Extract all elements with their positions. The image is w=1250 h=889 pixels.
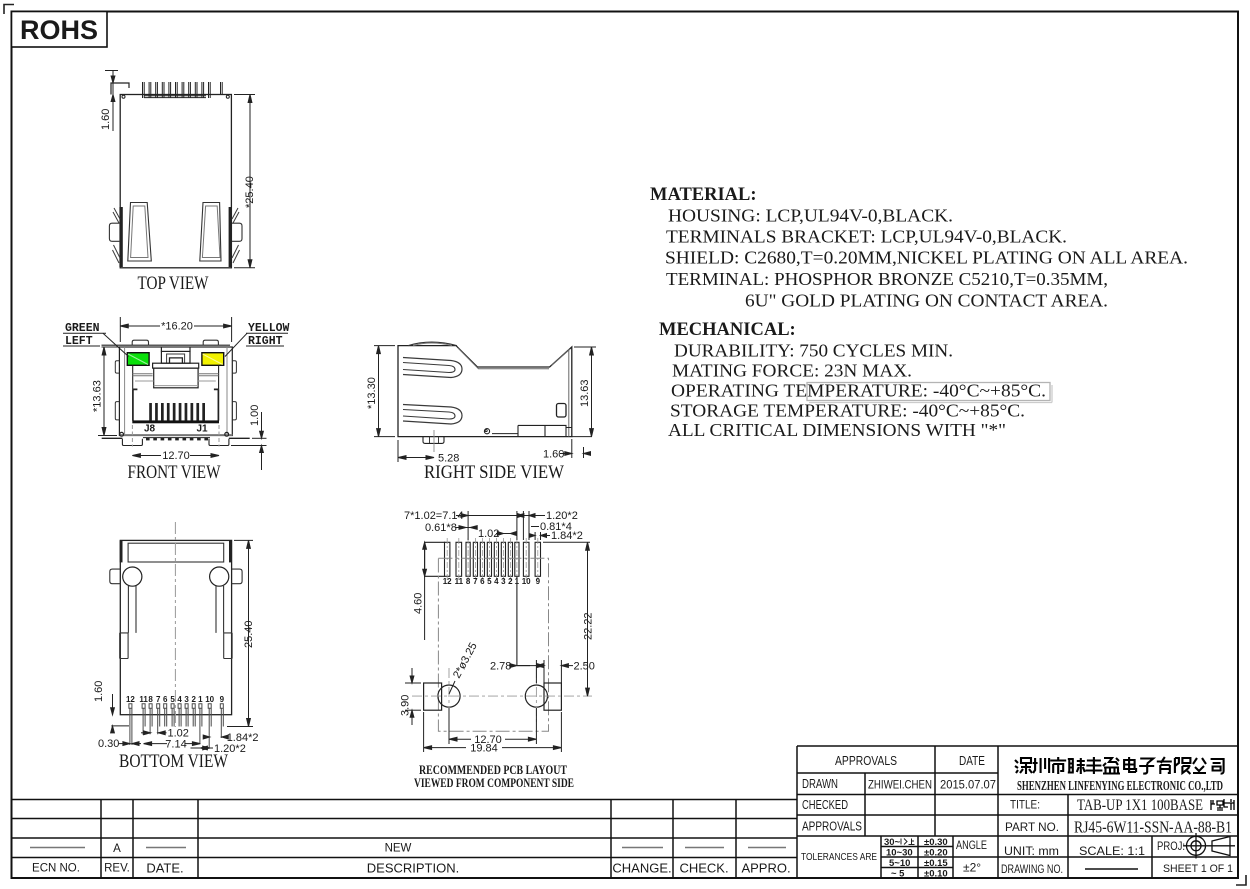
svg-text:A: A <box>113 843 121 855</box>
svg-text:2015.07.07: 2015.07.07 <box>940 778 996 792</box>
svg-text:3.90: 3.90 <box>400 695 412 716</box>
svg-text:1.60: 1.60 <box>543 449 564 461</box>
svg-text:DATE: DATE <box>959 753 985 768</box>
svg-text:ECN NO.: ECN NO. <box>32 863 80 875</box>
svg-text:TERMINALS BRACKET: LCP,UL94V-0: TERMINALS BRACKET: LCP,UL94V-0,BLACK. <box>666 227 1067 247</box>
svg-text:MATERIAL:: MATERIAL: <box>650 185 757 205</box>
svg-text:2.78: 2.78 <box>490 660 511 672</box>
svg-text:HOUSING: LCP,UL94V-0,BLACK.: HOUSING: LCP,UL94V-0,BLACK. <box>668 206 953 226</box>
svg-text:SHEET 1 OF 1: SHEET 1 OF 1 <box>1163 863 1233 875</box>
svg-text:APPROVALS: APPROVALS <box>802 820 862 834</box>
svg-text:10: 10 <box>205 695 214 704</box>
svg-text:4: 4 <box>494 577 499 586</box>
svg-text:12.70: 12.70 <box>162 450 190 462</box>
svg-text:PROJ:: PROJ: <box>1157 841 1185 853</box>
svg-text:±0.20: ±0.20 <box>924 848 948 859</box>
svg-text:19.84: 19.84 <box>470 742 498 754</box>
svg-text:RJ45-6W11-SSN-AA-88-B1: RJ45-6W11-SSN-AA-88-B1 <box>1074 818 1232 837</box>
svg-text:*13.63: *13.63 <box>92 380 104 412</box>
svg-text:9: 9 <box>220 695 225 704</box>
svg-text:SHIELD: C2680,T=0.20MM,NICKEL: SHIELD: C2680,T=0.20MM,NICKEL PLATING ON… <box>665 248 1188 268</box>
svg-text:4: 4 <box>177 695 182 704</box>
svg-text:6U" GOLD PLATING ON CONTACT AR: 6U" GOLD PLATING ON CONTACT AREA. <box>745 291 1108 311</box>
svg-text:VIEWED FROM COMPONENT SIDE: VIEWED FROM COMPONENT SIDE <box>414 776 574 790</box>
svg-text:CHANGE.: CHANGE. <box>612 861 671 876</box>
svg-text:11: 11 <box>455 577 464 586</box>
svg-text:7*1.02=7.14: 7*1.02=7.14 <box>404 510 464 522</box>
svg-text:±0.15: ±0.15 <box>924 858 948 869</box>
svg-text:8: 8 <box>466 577 471 586</box>
svg-text:TAB-UP 1X1 100BASE: TAB-UP 1X1 100BASE <box>1077 797 1203 814</box>
svg-text:*16.20: *16.20 <box>161 321 193 333</box>
svg-text:13.63: 13.63 <box>579 379 591 407</box>
svg-text:TERMINAL: PHOSPHOR BRONZE C521: TERMINAL: PHOSPHOR BRONZE C5210,T=0.35MM… <box>666 269 1108 289</box>
svg-text:±2°: ±2° <box>963 861 981 875</box>
svg-text:TOLERANCES ARE: TOLERANCES ARE <box>801 851 877 863</box>
svg-text:5: 5 <box>170 695 175 704</box>
svg-text:1: 1 <box>198 695 203 704</box>
svg-text:RECOMMENDED PCB LAYOUT: RECOMMENDED PCB LAYOUT <box>419 763 568 777</box>
svg-text:SHENZHEN LINFENYING ELECTRONIC: SHENZHEN LINFENYING ELECTRONIC CO.,LTD <box>1017 778 1223 793</box>
svg-text:ANGLE: ANGLE <box>956 840 987 852</box>
svg-text:7: 7 <box>156 695 161 704</box>
svg-text:UNIT: mm: UNIT: mm <box>1004 846 1059 858</box>
svg-text:7: 7 <box>473 577 478 586</box>
svg-text:OPERATING TEMPERATURE: -40°C~+: OPERATING TEMPERATURE: -40°C~+85°C. <box>671 381 1046 401</box>
svg-text:5: 5 <box>487 577 492 586</box>
svg-text:10~30: 10~30 <box>886 848 913 859</box>
svg-text:3: 3 <box>184 695 189 704</box>
svg-text:25.40: 25.40 <box>243 620 255 648</box>
svg-text:CHECK.: CHECK. <box>679 861 728 876</box>
svg-text:1.00: 1.00 <box>249 405 261 426</box>
svg-text:2: 2 <box>191 695 196 704</box>
svg-text:NEW: NEW <box>385 843 412 855</box>
svg-text:11: 11 <box>139 695 148 704</box>
svg-text:±0.30: ±0.30 <box>924 837 948 848</box>
svg-text:12: 12 <box>126 695 135 704</box>
svg-text:8: 8 <box>148 695 153 704</box>
svg-text:10: 10 <box>522 577 531 586</box>
svg-text:REV.: REV. <box>104 863 130 875</box>
svg-text:RIGHT SIDE VIEW: RIGHT SIDE VIEW <box>424 462 564 483</box>
svg-text:22.22: 22.22 <box>583 612 595 640</box>
svg-text:J1: J1 <box>197 424 209 435</box>
svg-text:~ 5: ~ 5 <box>891 869 905 880</box>
svg-text:FRONT VIEW: FRONT VIEW <box>128 462 221 483</box>
svg-text:4.60: 4.60 <box>413 593 425 614</box>
svg-text:12: 12 <box>443 577 452 586</box>
svg-text:DRAWN: DRAWN <box>802 777 838 791</box>
svg-text:ZHIWEI.CHEN: ZHIWEI.CHEN <box>868 778 932 792</box>
svg-text:1.60: 1.60 <box>100 109 112 130</box>
svg-text:DRAWING NO.: DRAWING NO. <box>1001 864 1063 876</box>
svg-text:DESCRIPTION.: DESCRIPTION. <box>367 861 459 876</box>
svg-text:30~: 30~ <box>884 837 901 848</box>
svg-text:*25.40: *25.40 <box>244 176 256 208</box>
svg-text:STORAGE TEMPERATURE: -40°C~+85: STORAGE TEMPERATURE: -40°C~+85°C. <box>670 401 1025 421</box>
svg-text:BOTTOM VIEW: BOTTOM VIEW <box>119 751 228 772</box>
svg-text:1.84*2: 1.84*2 <box>551 530 583 542</box>
svg-text:7.14: 7.14 <box>165 738 186 750</box>
svg-text:J8: J8 <box>144 424 156 435</box>
svg-text:±0.10: ±0.10 <box>924 869 948 880</box>
svg-text:DURABILITY: 750 CYCLES MIN.: DURABILITY: 750 CYCLES MIN. <box>674 341 953 361</box>
svg-text:*13.30: *13.30 <box>366 377 378 409</box>
svg-text:DATE.: DATE. <box>146 861 183 876</box>
svg-text:9: 9 <box>536 577 541 586</box>
svg-text:1.60: 1.60 <box>93 681 105 702</box>
svg-text:APPROVALS: APPROVALS <box>835 753 897 768</box>
svg-text:MECHANICAL:: MECHANICAL: <box>659 320 796 340</box>
svg-text:TOP VIEW: TOP VIEW <box>138 273 209 294</box>
svg-text:0.61*8: 0.61*8 <box>425 522 457 534</box>
svg-text:6: 6 <box>163 695 168 704</box>
svg-text:ALL CRITICAL DIMENSIONS WITH ": ALL CRITICAL DIMENSIONS WITH "*" <box>668 420 1006 440</box>
svg-text:ROHS: ROHS <box>20 15 98 45</box>
svg-text:SCALE: 1:1: SCALE: 1:1 <box>1079 846 1145 858</box>
svg-text:3: 3 <box>501 577 506 586</box>
svg-text:CHECKED: CHECKED <box>802 798 848 812</box>
svg-text:5~10: 5~10 <box>889 858 910 869</box>
svg-text:TITLE:: TITLE: <box>1010 800 1040 812</box>
svg-text:0.30: 0.30 <box>98 738 119 750</box>
svg-text:6: 6 <box>480 577 485 586</box>
svg-text:MATING FORCE: 23N MAX.: MATING FORCE: 23N MAX. <box>672 361 912 381</box>
svg-text:2.50: 2.50 <box>574 660 595 672</box>
svg-text:APPRO.: APPRO. <box>741 861 790 876</box>
svg-text:2: 2 <box>508 577 513 586</box>
svg-text:PART NO.: PART NO. <box>1005 822 1059 834</box>
